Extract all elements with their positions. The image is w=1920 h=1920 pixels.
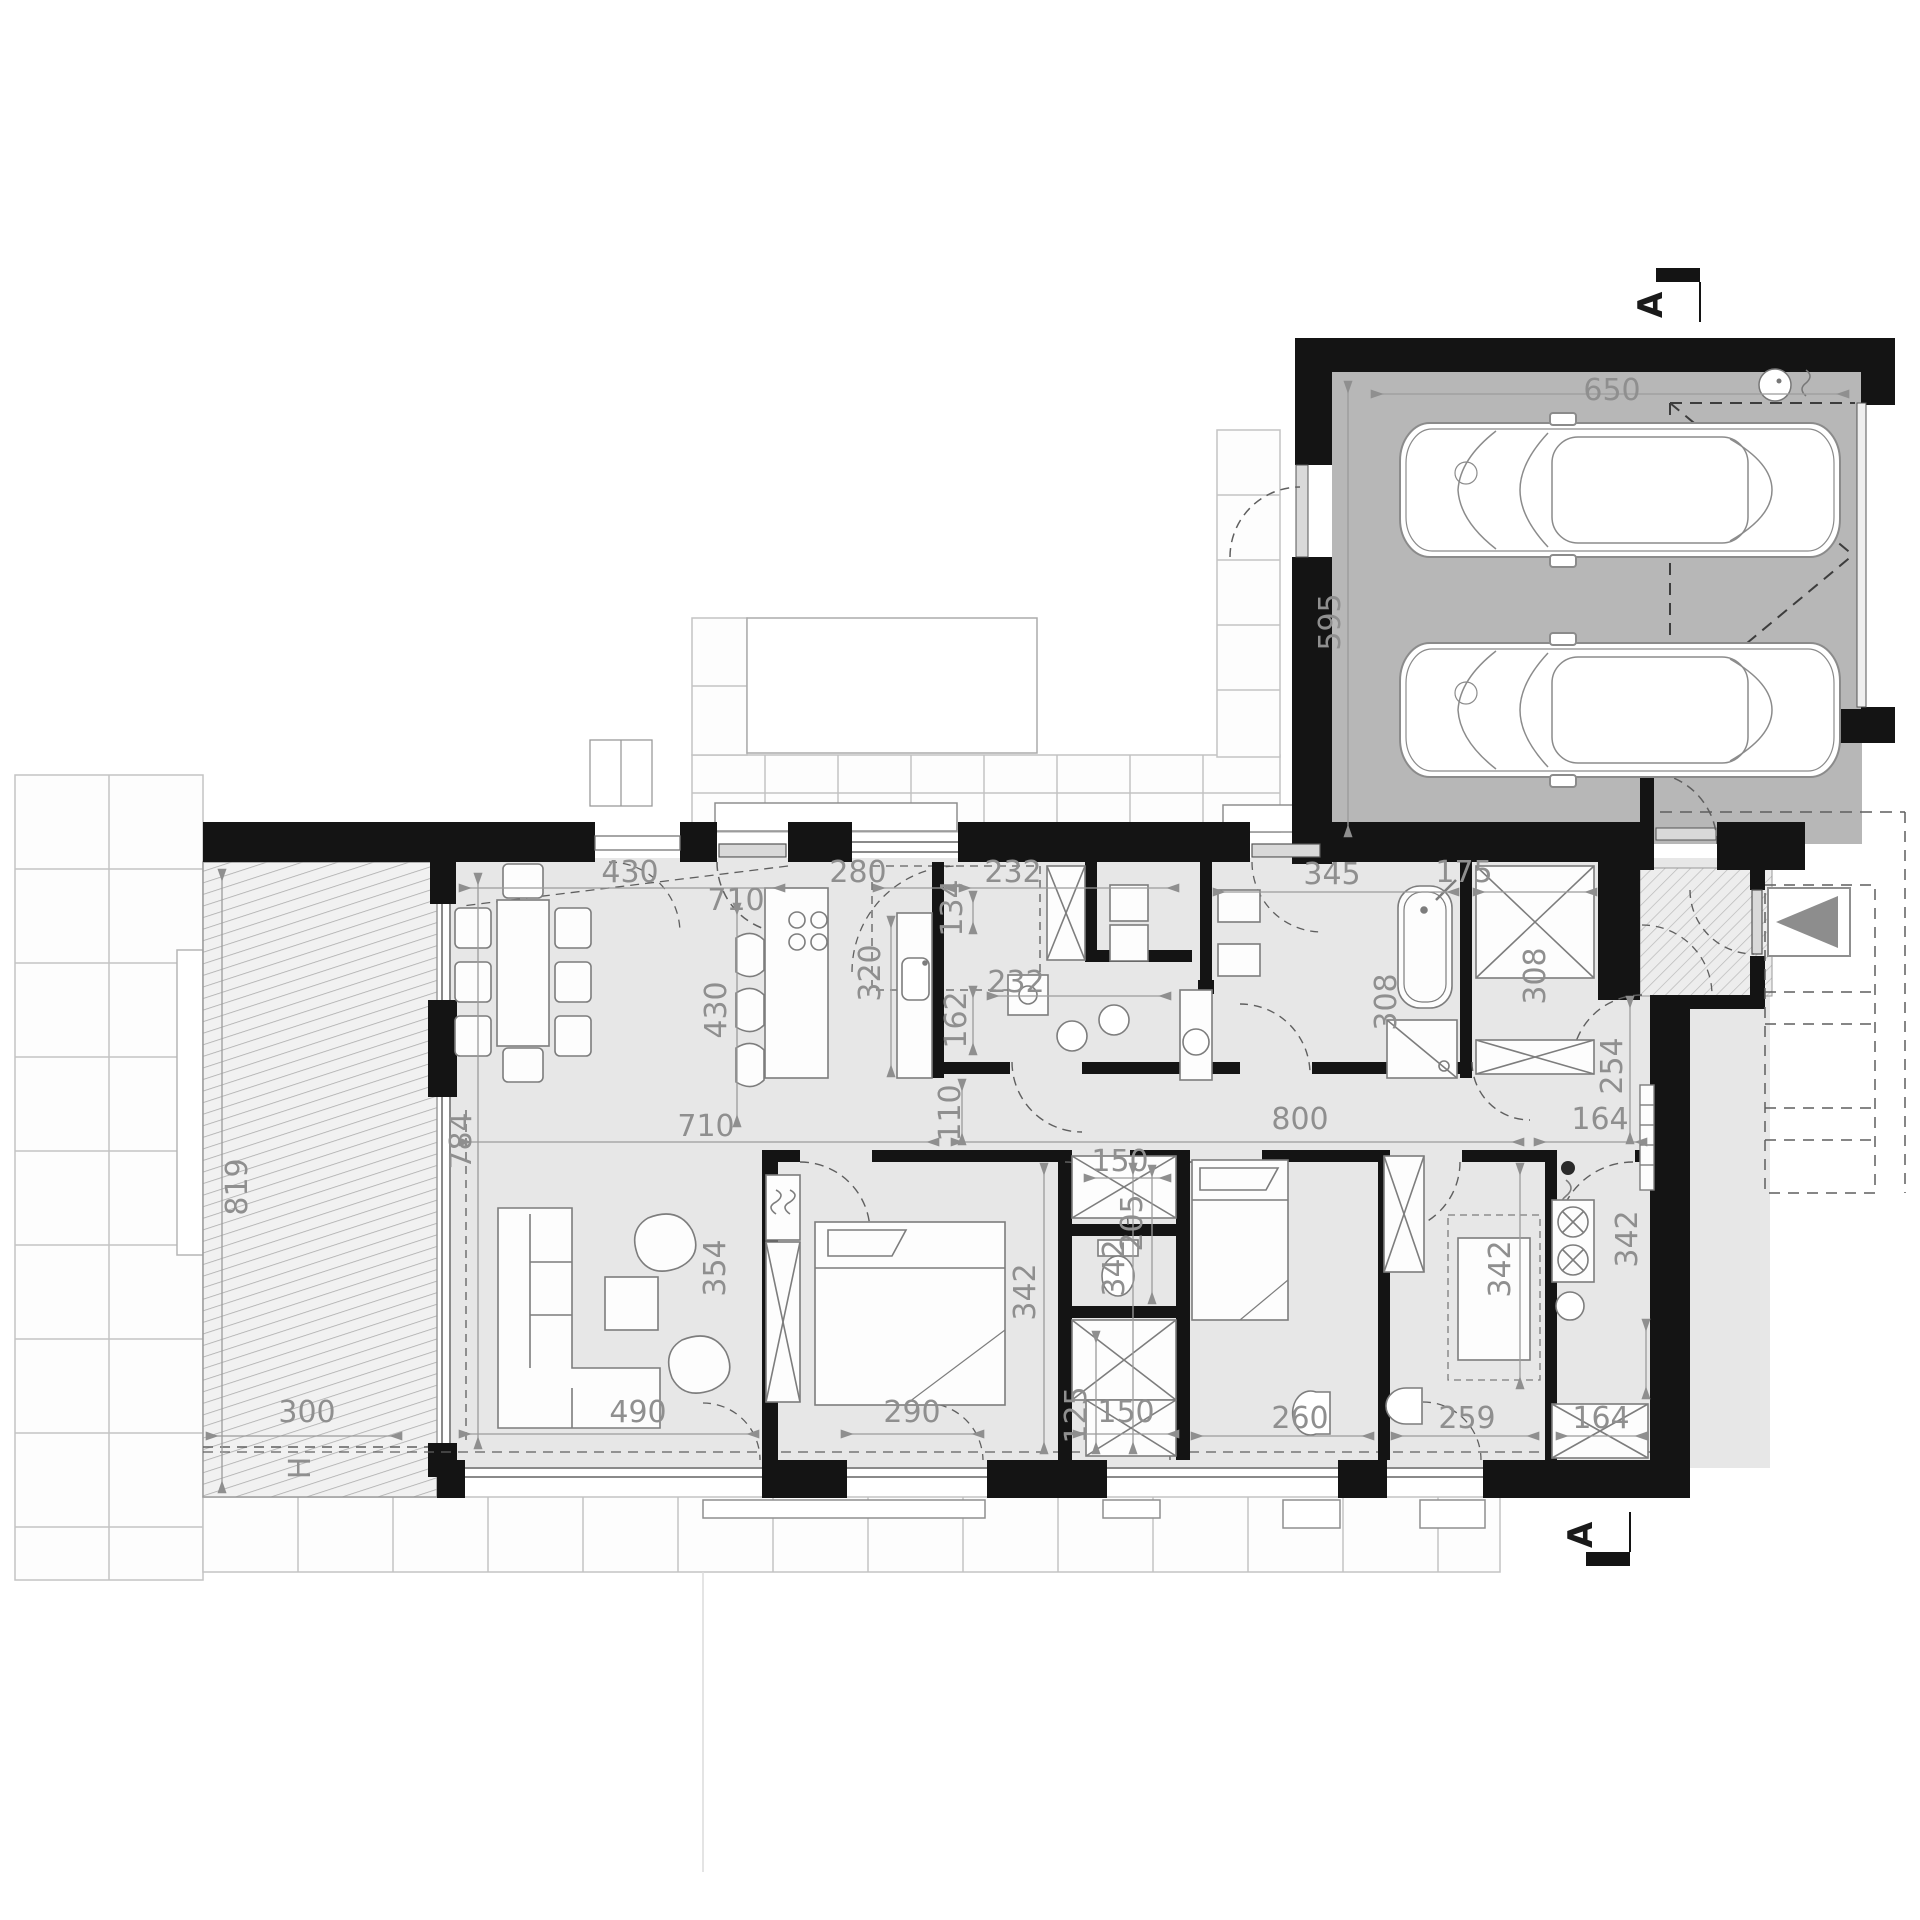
dimension-label: 110 <box>933 1084 968 1141</box>
dimension-label: 595 <box>1313 593 1348 650</box>
dimension-label: 125 <box>1059 1386 1094 1443</box>
dimension-label: 819 <box>220 1158 255 1215</box>
dimension-label: 710 <box>677 1109 734 1144</box>
boiler <box>1552 1200 1594 1282</box>
basin <box>1556 1292 1584 1320</box>
basin <box>1057 1021 1087 1051</box>
armchair <box>669 1336 730 1393</box>
dimension-label: 320 <box>853 944 888 1001</box>
gas-point-icon <box>1561 1161 1575 1175</box>
dimension-label: 254 <box>1595 1037 1630 1094</box>
dimension-label: 232 <box>984 855 1041 890</box>
dimension-label: 162 <box>939 991 974 1048</box>
washbasin <box>1218 890 1260 922</box>
dimension-label: 175 <box>1435 855 1492 890</box>
dimension-label: 290 <box>883 1395 940 1430</box>
dimension-label: 490 <box>609 1395 666 1430</box>
section-label: A <box>1631 291 1671 318</box>
garage-vestibule-door <box>1656 828 1716 840</box>
section-marker-top: A <box>1631 268 1700 322</box>
dimension-label: 150 <box>1097 1395 1154 1430</box>
dimension-label: 260 <box>1271 1401 1328 1436</box>
bar-stools <box>736 933 764 1086</box>
dimension-label: 342 <box>1483 1240 1518 1297</box>
dimension-label: 345 <box>1303 857 1360 892</box>
dimension-label: 300 <box>278 1395 335 1430</box>
section-label: A <box>1561 1521 1601 1548</box>
dimension-label: 650 <box>1583 373 1640 408</box>
dimension-label: 308 <box>1369 973 1404 1030</box>
coffee-table <box>605 1277 658 1330</box>
garage-side-door <box>1296 465 1308 557</box>
appliance <box>1110 925 1148 961</box>
garage-gate <box>1857 403 1866 707</box>
dimension-label: 134 <box>935 879 970 936</box>
dimension-label: 800 <box>1271 1102 1328 1137</box>
dimension-label: 164 <box>1571 1102 1628 1137</box>
dimension-label: 430 <box>699 981 734 1038</box>
armchair <box>635 1214 696 1271</box>
appliance <box>1110 885 1148 921</box>
toilet <box>1386 1388 1422 1424</box>
dimension-label: 205 <box>1115 1194 1150 1251</box>
dimension-label: 232 <box>987 965 1044 1000</box>
tile-path-top <box>692 430 1322 832</box>
hall-radiator <box>1640 1085 1654 1190</box>
kitchen-island <box>765 888 828 1078</box>
section-marker-bottom: A <box>1561 1512 1630 1566</box>
dimension-label: 164 <box>1572 1401 1629 1436</box>
dimension-label: 150 <box>1091 1144 1148 1179</box>
dimension-label: 354 <box>698 1239 733 1296</box>
floor-plan-page: 4307102802323451756505951343204301622323… <box>0 0 1920 1920</box>
tile-path-bottom <box>203 1497 1500 1872</box>
dimension-label: 342 <box>1008 1263 1043 1320</box>
dimension-label: 259 <box>1438 1401 1495 1436</box>
dimension-label: 280 <box>829 855 886 890</box>
washbasin <box>1218 944 1260 976</box>
dimension-label: 308 <box>1518 947 1553 1004</box>
dimension-label: 784 <box>444 1112 479 1169</box>
pillow <box>828 1230 906 1256</box>
dimension-label: 710 <box>707 883 764 918</box>
floor-drain-icon <box>1759 369 1791 401</box>
basin <box>1099 1005 1129 1035</box>
pillow <box>1200 1168 1278 1190</box>
dimension-label: 342 <box>1610 1210 1645 1267</box>
dimension-label: H <box>283 1457 318 1480</box>
floor-plan-drawing: 4307102802323451756505951343204301622323… <box>0 0 1920 1920</box>
garden-tile-grid-left <box>15 775 203 1580</box>
dimension-label: 430 <box>601 855 658 890</box>
bathtub <box>1398 886 1452 1008</box>
